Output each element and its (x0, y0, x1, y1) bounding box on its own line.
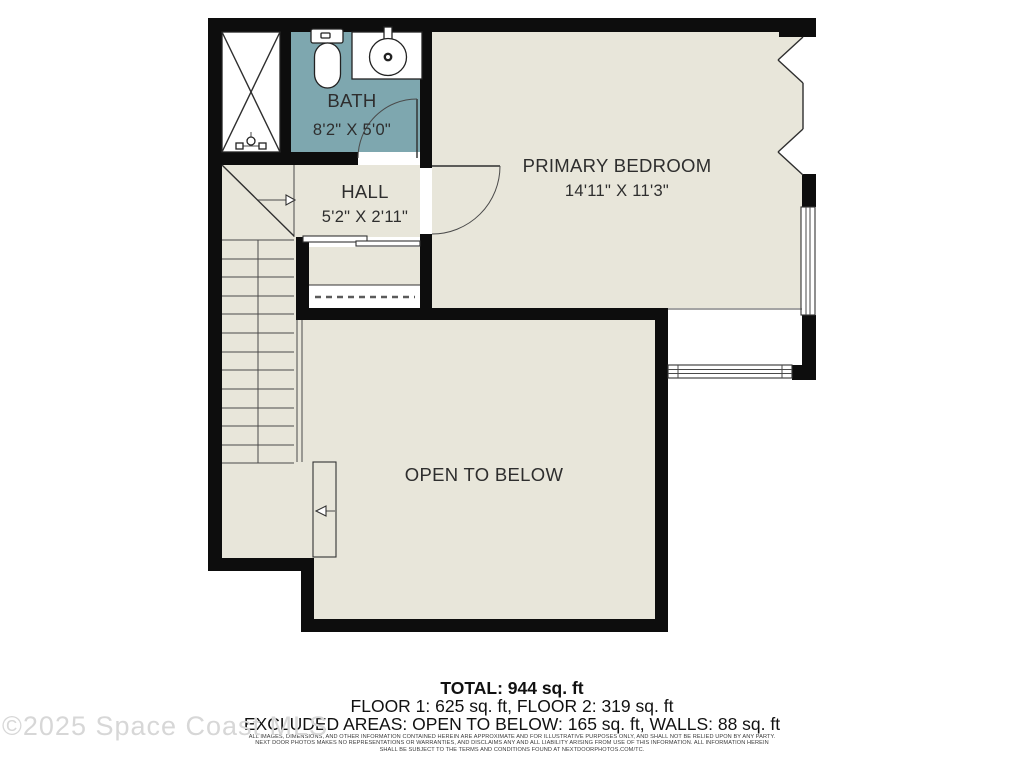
window-nook (668, 365, 792, 378)
sink-icon (352, 27, 422, 79)
hall-dims: 5'2" X 2'11" (322, 208, 408, 226)
wall-step-horizontal (208, 558, 314, 571)
window-right-wall (801, 207, 815, 315)
stair-floor (222, 165, 296, 558)
open-to-below-label: OPEN TO BELOW (405, 464, 564, 485)
wall-open-below-right (655, 318, 668, 632)
bath-door-opening (358, 152, 420, 165)
bath-label: BATH (327, 90, 376, 111)
wall-bath-bottom (222, 152, 358, 165)
wall-shower-divider (280, 32, 291, 152)
hall-label: HALL (341, 181, 388, 202)
bedroom-door-opening (420, 168, 432, 234)
total-area-text: TOTAL: 944 sq. ft (0, 679, 1024, 697)
primary-bedroom-label: PRIMARY BEDROOM (523, 155, 712, 176)
open-below-floor-lower (314, 558, 655, 619)
primary-bedroom-dims: 14'11" X 11'3" (565, 182, 669, 200)
open-below-floor-upper (296, 320, 655, 558)
wall-bottom (301, 619, 668, 632)
wall-bedroom-divider-lower (420, 234, 432, 320)
floor-plan-page: BATH 8'2" X 5'0" HALL 5'2" X 2'11" PRIMA… (0, 0, 1024, 768)
wall-top (208, 18, 816, 32)
shower (222, 32, 280, 152)
stair-lower-run (313, 462, 336, 557)
disclaimer-line-3: SHALL BE SUBJECT TO THE TERMS AND CONDIT… (0, 747, 1024, 753)
wall-top-right-corner (779, 18, 816, 37)
wall-nook-corner (792, 365, 816, 380)
floor-plan-drawing: BATH 8'2" X 5'0" HALL 5'2" X 2'11" PRIMA… (0, 0, 1024, 768)
bath-dims: 8'2" X 5'0" (313, 121, 391, 139)
toilet-icon (311, 29, 343, 88)
wall-right-segment-a (802, 174, 816, 207)
wall-mid-horizontal (296, 308, 668, 320)
wall-closet-left (296, 237, 309, 318)
wall-left (208, 18, 222, 571)
mls-watermark: ©2025 Space Coast MLS (2, 711, 328, 742)
